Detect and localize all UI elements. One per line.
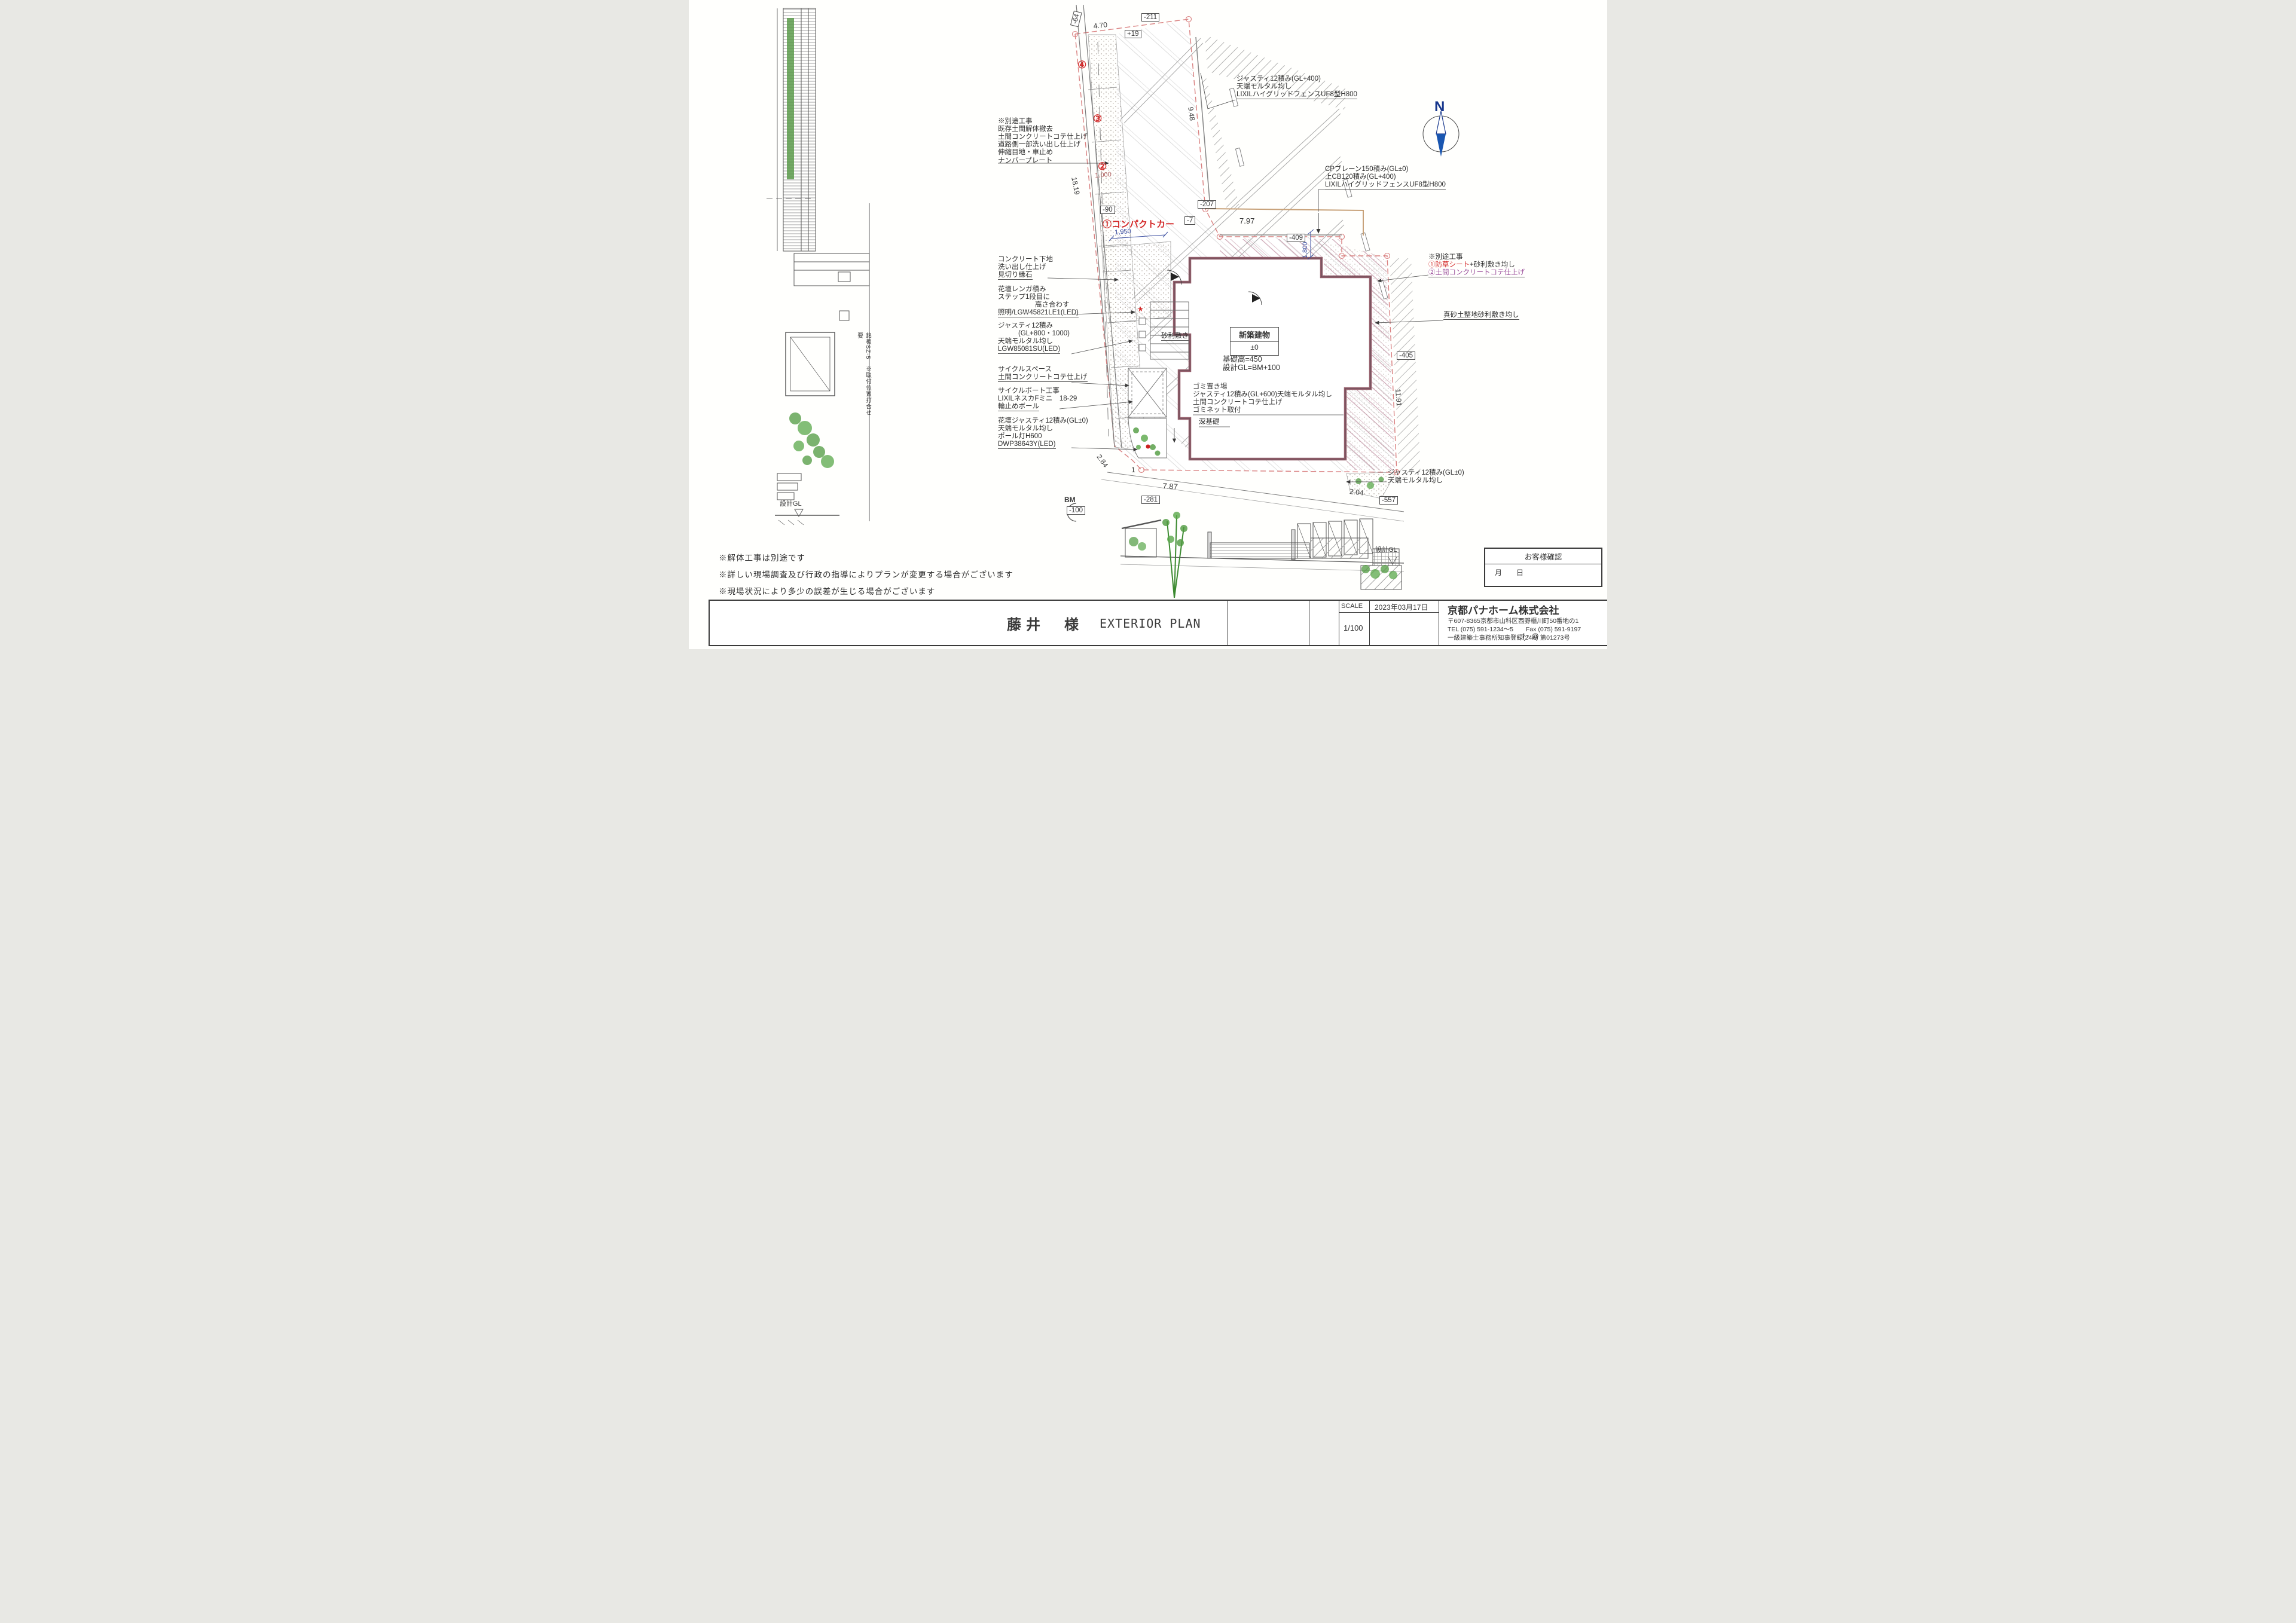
- parking-mark-3: ③: [1093, 114, 1102, 124]
- site-plan-drawing: [689, 0, 1607, 649]
- dim-9-48: 9.48: [1187, 106, 1196, 121]
- north-label: N: [1434, 99, 1445, 114]
- building-label-box: 新築建物 ±0: [1230, 327, 1279, 356]
- compact-car-label: ①コンパクトカー: [1103, 220, 1174, 230]
- cycle-port: [1128, 368, 1167, 417]
- annotation-line: 土間コンクリートコテ仕上げ: [998, 374, 1088, 382]
- annotation-concrete-base: コンクリート下地 洗い出し仕上げ 見切り縁石: [998, 256, 1053, 280]
- parking-mark-2: ②: [1098, 161, 1107, 172]
- annotation-line: 天端モルタル均し: [998, 425, 1088, 433]
- annotation-line: ゴミネット取付: [1193, 406, 1332, 414]
- annotation-line: LGW85081SU(LED): [998, 346, 1060, 354]
- planting-green: [789, 412, 834, 468]
- annotation-line: ナンバープレート: [998, 157, 1088, 165]
- scale-value: 1/100: [1344, 623, 1363, 632]
- annotation-line: ゴミ置き場: [1193, 383, 1332, 391]
- company-address: 〒607-8365京都市山科区西野櫃川町50番地の1: [1448, 616, 1578, 625]
- nameplate-note: 銘板SZ-5 ※取付位置打合せ要: [855, 332, 872, 422]
- title-block: 藤井 様 EXTERIOR PLAN SCALE 1/100 2023年03月1…: [709, 600, 1607, 646]
- annotation-line: 真砂土整地砂利敷き均し: [1443, 311, 1519, 320]
- annotation-line: (GL+800・1000): [998, 330, 1070, 338]
- title-block-divider: [1339, 601, 1339, 645]
- annotation-justy-wall: ジャスティ12積み (GL+800・1000) 天端モルタル均し LGW8508…: [998, 322, 1070, 354]
- design-gl-right: 設計GL: [1375, 547, 1397, 554]
- annotation-line: ②土間コンクリートコテ仕上げ: [1428, 269, 1525, 277]
- annotation-foundation: 基礎高=450 設計GL=BM+100: [1223, 355, 1280, 372]
- level-minus90: -90: [1100, 206, 1115, 214]
- company-tel: TEL (075) 591-1234〜5 Fax (075) 591-9197: [1448, 625, 1581, 634]
- annotation-flower-brick: 花壇レンガ積み ステップ1段目に 高さ合わす 照明/LGW45821LE1(LE…: [998, 286, 1079, 317]
- pole-light-dot: [1146, 445, 1150, 449]
- client-name: 藤井 様: [1007, 613, 1083, 634]
- level-minus207: -207: [1198, 200, 1216, 209]
- annotation-line: 上CB120積み(GL+400): [1325, 173, 1446, 181]
- level-minus100: -100: [1067, 506, 1085, 515]
- annotation-cycle-port: サイクルポート工事 LIXILネスカFミニ 18-29 輪止めボール: [998, 387, 1077, 411]
- star-marker: ★: [1137, 305, 1144, 313]
- left-elevation-detail: [767, 8, 869, 525]
- annotation-line: 砂利敷き: [1161, 332, 1189, 341]
- street-elevation: [1120, 512, 1404, 598]
- annotation-flower-justy: 花壇ジャスティ12積み(GL±0) 天端モルタル均し ポール灯H600 DWP3…: [998, 417, 1088, 449]
- dim-1: 1: [1131, 466, 1135, 474]
- annotation-black-part: +砂利敷き均し: [1470, 261, 1515, 268]
- level-minus281: -281: [1141, 496, 1160, 504]
- annotation-line: LIXILハイグリッドフェンスUF8型H800: [1236, 91, 1357, 99]
- annotation-gravel: 砂利敷き: [1161, 332, 1189, 341]
- annotation-line: コンクリート下地: [998, 256, 1053, 264]
- dim-1950: 1,950: [1115, 228, 1131, 236]
- level-minus405: -405: [1397, 352, 1415, 360]
- level-minus557: -557: [1379, 496, 1398, 505]
- annotation-line: サイクルポート工事: [998, 387, 1077, 395]
- parking-mark-4: ④: [1077, 60, 1086, 71]
- annotation-line: 土間コンクリートコテ仕上げ: [1193, 399, 1332, 406]
- title-block-divider: [1339, 612, 1439, 613]
- exterior-plan-sheet: 4.70 -211 -64 +19 9.48 ④ ③ ② 1,000 18.19…: [689, 0, 1607, 649]
- title-block-divider: [1309, 601, 1309, 645]
- annotation-line: 天端モルタル均し: [998, 338, 1070, 346]
- annotation-line: 照明/LGW45821LE1(LED): [998, 309, 1079, 317]
- annotation-line: 既存土間解体撤去: [998, 126, 1088, 133]
- annotation-line: 洗い出し仕上げ: [998, 264, 1053, 271]
- dim-2-04: 2.04: [1349, 488, 1364, 497]
- title-block-divider: [1369, 601, 1370, 645]
- annotation-side-works: ※別途工事 ①防草シート+砂利敷き均し ②土間コンクリートコテ仕上げ: [1428, 253, 1525, 277]
- annotation-line: ステップ1段目に: [998, 294, 1079, 301]
- dim-1800: 1,800: [1302, 242, 1309, 258]
- note-3: ※現場状況により多少の誤差が生じる場合がございます: [719, 585, 935, 597]
- level-minus7: -7: [1184, 216, 1195, 225]
- tall-plant: [1162, 512, 1187, 598]
- note-1: ※解体工事は別途です: [719, 551, 805, 563]
- annotation-cycle-space: サイクルスペース 土間コンクリートコテ仕上げ: [998, 366, 1088, 382]
- annotation-line: ジャスティ12積み(GL+400): [1236, 75, 1357, 83]
- annotation-line: 深基礎: [1199, 418, 1220, 426]
- annotation-line: ジャスティ12積み(GL+600)天端モルタル均し: [1193, 391, 1332, 399]
- annotation-line: LIXILネスカFミニ 18-29: [998, 395, 1077, 403]
- corner-mark: f・@: [1522, 632, 1539, 640]
- note-2: ※詳しい現場調査及び行政の指導によりプランが変更する場合がございます: [719, 568, 1013, 580]
- annotation-line: ジャスティ12積み(GL±0): [1388, 469, 1464, 477]
- annotation-line: ポール灯H600: [998, 433, 1088, 441]
- dim-7-97: 7.97: [1239, 217, 1254, 225]
- annotation-line: 基礎高=450: [1223, 355, 1280, 363]
- annotation-line: 天端モルタル均し: [1388, 477, 1464, 485]
- annotation-line: DWP38643Y(LED): [998, 441, 1056, 449]
- annotation-line: 花壇レンガ積み: [998, 286, 1079, 294]
- drawing-date: 2023年03月17日: [1375, 602, 1428, 612]
- annotation-line: ※別途工事: [1428, 253, 1525, 261]
- level-minus211: -211: [1141, 13, 1159, 22]
- annotation-line: 設計GL=BM+100: [1223, 363, 1280, 372]
- annotation-line: 見切り縁石: [998, 271, 1033, 280]
- dim-11-91: 11.91: [1394, 389, 1403, 406]
- annotation-line: ジャスティ12積み: [998, 322, 1070, 330]
- annotation-line: 天端モルタル均し: [1236, 83, 1357, 91]
- customer-confirmation-box: お客様確認 月 日: [1484, 548, 1602, 587]
- annotation-line: 輪止めボール: [998, 403, 1039, 411]
- annotation-garbage: ゴミ置き場 ジャスティ12積み(GL+600)天端モルタル均し 土間コンクリート…: [1193, 383, 1332, 414]
- building-level: ±0: [1231, 342, 1278, 352]
- annotation-line: サイクルスペース: [998, 366, 1088, 374]
- annotation-justy-bottom: ジャスティ12積み(GL±0) 天端モルタル均し: [1388, 469, 1464, 485]
- annotation-cp-fence: CPブレーン150積み(GL±0) 上CB120積み(GL+400) LIXIL…: [1325, 166, 1446, 189]
- annotation-line: 道路側一部洗い出し仕上げ: [998, 141, 1088, 149]
- title-block-divider: [1439, 601, 1439, 645]
- annotation-line: 高さ合わす: [998, 301, 1079, 309]
- annotation-line: 土間コンクリートコテ仕上げ: [998, 133, 1088, 141]
- level-plus19: +19: [1125, 30, 1141, 38]
- title-block-divider: [1228, 601, 1228, 645]
- annotation-line: CPブレーン150積み(GL±0): [1325, 166, 1446, 173]
- building-name: 新築建物: [1231, 328, 1278, 342]
- dim-7-87: 7.87: [1162, 482, 1178, 491]
- annotation-line: LIXILハイグリッドフェンスUF8型H800: [1325, 181, 1446, 189]
- annotation-masa-soil: 真砂土整地砂利敷き均し: [1443, 311, 1519, 320]
- annotation-red-part: ①防草シート: [1428, 261, 1470, 268]
- bm-label: BM: [1064, 496, 1076, 504]
- north-arrow: [1423, 111, 1459, 157]
- annotation-line: 花壇ジャスティ12積み(GL±0): [998, 417, 1088, 425]
- dim-1000: 1,000: [1095, 172, 1112, 179]
- company-license: 一級建築士事務所知事登録(24A) 第01273号: [1448, 633, 1570, 642]
- annotation-line: ※別途工事: [998, 118, 1088, 126]
- plan-title: EXTERIOR PLAN: [1100, 616, 1201, 631]
- customer-box-date-row: 月 日: [1485, 564, 1601, 577]
- annotation-road-works: ※別途工事 既存土間解体撤去 土間コンクリートコテ仕上げ 道路側一部洗い出し仕上…: [998, 118, 1088, 165]
- annotation-deep-foundation: 深基礎: [1199, 418, 1220, 426]
- level-minus409: -409: [1287, 234, 1305, 242]
- scale-label: SCALE: [1341, 603, 1363, 610]
- dim-4-70: 4.70: [1093, 21, 1108, 30]
- customer-box-title: お客様確認: [1485, 549, 1601, 564]
- design-gl-left: 設計GL: [780, 501, 802, 508]
- annotation-line: ①防草シート+砂利敷き均し: [1428, 261, 1525, 269]
- annotation-line: 伸縮目地・車止め: [998, 149, 1088, 157]
- annotation-fence-top: ジャスティ12積み(GL+400) 天端モルタル均し LIXILハイグリッドフェ…: [1236, 75, 1357, 99]
- company-name: 京都パナホーム株式会社: [1448, 602, 1559, 617]
